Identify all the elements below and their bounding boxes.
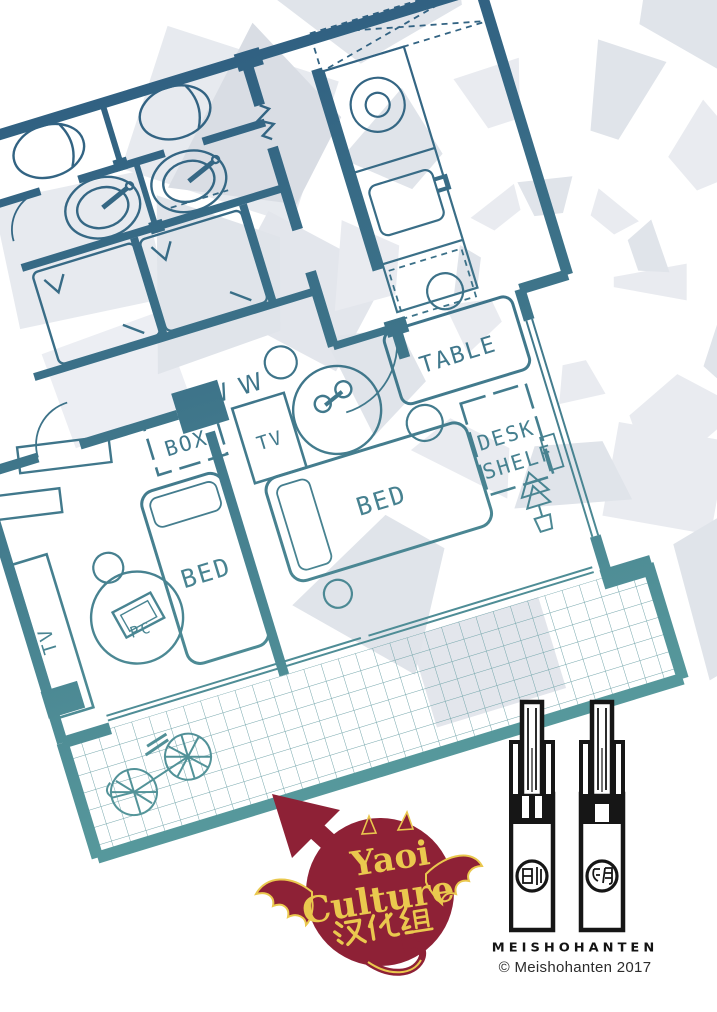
burst-segment (341, 88, 443, 189)
pillow-icon (275, 478, 333, 572)
room-label-table: TABLE (417, 331, 500, 379)
publisher-brand: MEISHOHANTEN (486, 942, 664, 956)
room-label-bed-left: BED (177, 552, 234, 595)
pen-mark-left-icon (509, 702, 555, 930)
burst-segment (559, 360, 605, 404)
publisher-pen-marks (509, 698, 641, 936)
burst-segment (591, 39, 667, 139)
burst-segment (668, 100, 717, 191)
copyright-line: © Meishohanten 2017 (486, 959, 664, 976)
scanlation-logo: Yaoi Culture (250, 790, 488, 986)
room-label-pc: PC (128, 618, 154, 642)
burst-segment (273, 0, 462, 64)
room-label-tv: TV (254, 426, 286, 455)
room-label-bed: BED (353, 479, 410, 522)
sideboard-outline (0, 488, 62, 522)
washer-marks: W W (201, 367, 268, 412)
burst-segment (471, 184, 521, 231)
publisher-block: MEISHOHANTEN © Meishohanten 2017 (486, 698, 664, 976)
burst-segment (628, 220, 670, 273)
burst-segment (591, 188, 639, 234)
credits-page: TABLE BOX TV BED BED DESK SHELF PC TV W … (0, 0, 717, 1012)
room-label-box: BOX (162, 426, 211, 462)
burst-segment (704, 295, 717, 404)
pen-mark-right-icon (579, 702, 625, 930)
